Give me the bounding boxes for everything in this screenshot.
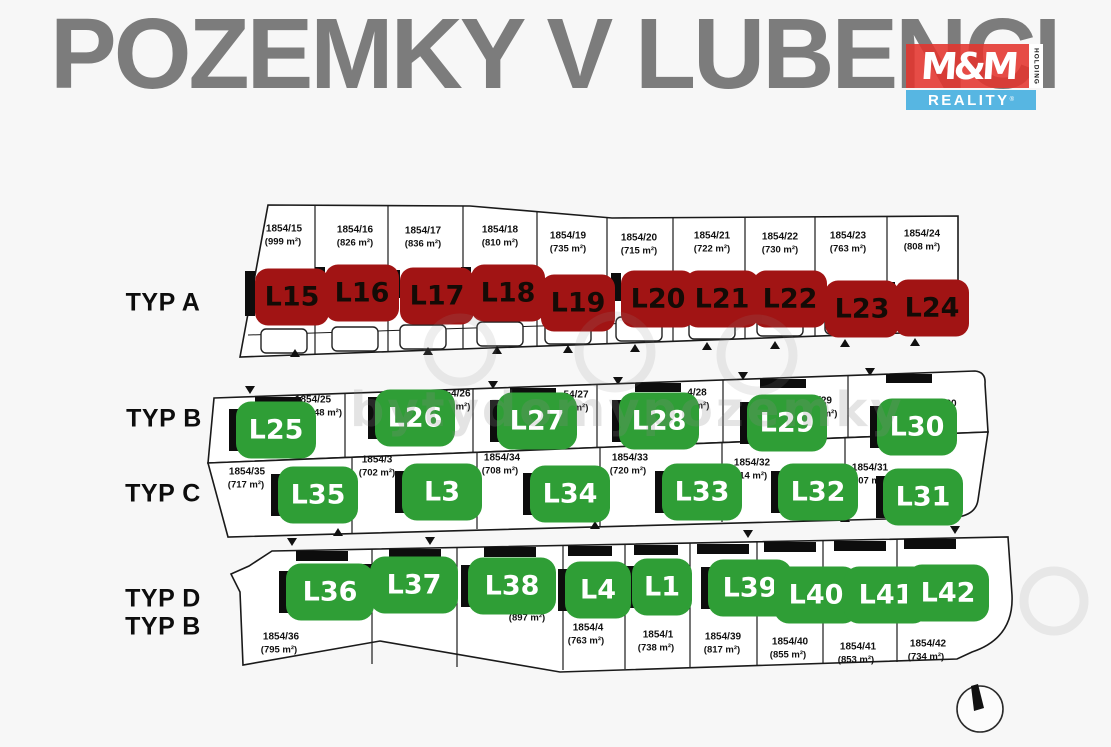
parcel-area: 48 m²) <box>314 408 342 419</box>
plot-label-L28[interactable]: L28 <box>619 393 699 450</box>
building-footprint <box>245 271 255 299</box>
plot-label-L15[interactable]: L15 <box>255 269 329 326</box>
plot-label-L26[interactable]: L26 <box>375 390 455 447</box>
row-type-label-typ-b: TYP B <box>126 405 202 434</box>
row-type-label-typ-c: TYP C <box>125 480 201 509</box>
plot-label-L4[interactable]: L4 <box>565 562 631 619</box>
parcel-area: (702 m²) <box>359 468 395 479</box>
parcel-number: 1854/3 <box>362 455 393 466</box>
parcel-number: 1854/39 <box>705 632 741 643</box>
plot-label-L19[interactable]: L19 <box>541 275 615 332</box>
plot-label-L25[interactable]: L25 <box>236 402 316 459</box>
plot-label-L42[interactable]: L42 <box>907 565 989 622</box>
plot-label-L1[interactable]: L1 <box>632 559 692 616</box>
parcel-area: (817 m²) <box>704 645 740 656</box>
plot-label-L33[interactable]: L33 <box>662 464 742 521</box>
parcel-area: (855 m²) <box>770 650 806 661</box>
map-annotation-layer: TYP A1854/15(999 m²)L151854/16(826 m²)L1… <box>0 0 1111 747</box>
parcel-number: 1854/42 <box>910 639 946 650</box>
parcel-area: (738 m²) <box>638 643 674 654</box>
parcel-area: (763 m²) <box>568 636 604 647</box>
plot-label-L3[interactable]: L3 <box>402 464 482 521</box>
plot-label-L17[interactable]: L17 <box>400 268 474 325</box>
parcel-area: (735 m²) <box>550 244 586 255</box>
parcel-number: 1854/15 <box>266 224 302 235</box>
parcel-number: 1854/33 <box>612 453 648 464</box>
parcel-number: 1854/17 <box>405 226 441 237</box>
parcel-area: (810 m²) <box>482 238 518 249</box>
parcel-number: 1854/40 <box>772 637 808 648</box>
logo-mm-text: M&M <box>919 48 1015 85</box>
plot-label-L23[interactable]: L23 <box>825 281 899 338</box>
parcel-area: (734 m²) <box>908 652 944 663</box>
parcel-area: m²) <box>456 402 471 413</box>
parcel-number: 1854/20 <box>621 233 657 244</box>
parcel-area: (730 m²) <box>762 245 798 256</box>
plot-label-L20[interactable]: L20 <box>621 271 695 328</box>
parcel-number: 1854/18 <box>482 225 518 236</box>
parcel-area: (808 m²) <box>904 242 940 253</box>
parcel-number: 1854/21 <box>694 231 730 242</box>
logo-holding-text: HOLDING <box>1033 48 1040 85</box>
parcel-area: (763 m²) <box>830 244 866 255</box>
parcel-number: 1854/4 <box>573 623 604 634</box>
parcel-area: (853 m²) <box>838 655 874 666</box>
plot-label-L21[interactable]: L21 <box>685 271 759 328</box>
parcel-number: 1854/36 <box>263 632 299 643</box>
parcel-number: 1854/19 <box>550 231 586 242</box>
plot-label-L38[interactable]: L38 <box>468 558 556 615</box>
row-type-label-typ-d: TYP D <box>125 585 201 614</box>
parcel-number: 1854/34 <box>484 453 520 464</box>
parcel-area: (715 m²) <box>621 246 657 257</box>
logo-registered-mark: ® <box>1010 97 1014 103</box>
parcel-area: (826 m²) <box>337 238 373 249</box>
parcel-area: (722 m²) <box>694 244 730 255</box>
parcel-number: 1854/24 <box>904 229 940 240</box>
parcel-area: (717 m²) <box>228 480 264 491</box>
plot-label-L16[interactable]: L16 <box>325 265 399 322</box>
parcel-number: 1854/23 <box>830 231 866 242</box>
logo-holding-strip: HOLDING <box>1029 44 1043 88</box>
parcel-number: 1854/31 <box>852 463 888 474</box>
row-type-label-typ-a: TYP A <box>126 289 201 318</box>
row-type-label-typ-d-2: TYP B <box>125 613 201 642</box>
plot-label-L18[interactable]: L18 <box>471 265 545 322</box>
parcel-number: 1854/1 <box>643 630 674 641</box>
plot-label-L35[interactable]: L35 <box>278 467 358 524</box>
plot-label-L24[interactable]: L24 <box>895 280 969 337</box>
plot-label-L29[interactable]: L29 <box>747 395 827 452</box>
parcel-area: (795 m²) <box>261 645 297 656</box>
plot-label-L34[interactable]: L34 <box>530 466 610 523</box>
parcel-number: 1854/16 <box>337 225 373 236</box>
plot-label-L30[interactable]: L30 <box>877 399 957 456</box>
plot-label-L22[interactable]: L22 <box>753 271 827 328</box>
parcel-area: (999 m²) <box>265 237 301 248</box>
parcel-area: (836 m²) <box>405 239 441 250</box>
parcel-area: (720 m²) <box>610 466 646 477</box>
plot-label-L36[interactable]: L36 <box>286 564 374 621</box>
mm-reality-logo: M&M HOLDING REALITY® <box>906 44 1041 110</box>
parcel-number: 1854/41 <box>840 642 876 653</box>
plot-label-L32[interactable]: L32 <box>778 464 858 521</box>
logo-reality-text: REALITY <box>928 93 1010 108</box>
logo-red-box: M&M <box>906 44 1029 88</box>
logo-reality-bar: REALITY® <box>906 90 1036 110</box>
parcel-number: 1854/32 <box>734 458 770 469</box>
plot-label-L31[interactable]: L31 <box>883 469 963 526</box>
parcel-area: (708 m²) <box>482 466 518 477</box>
plot-label-L37[interactable]: L37 <box>370 557 458 614</box>
parcel-number: 1854/35 <box>229 467 265 478</box>
parcel-number: 1854/22 <box>762 232 798 243</box>
plot-label-L27[interactable]: L27 <box>497 393 577 450</box>
